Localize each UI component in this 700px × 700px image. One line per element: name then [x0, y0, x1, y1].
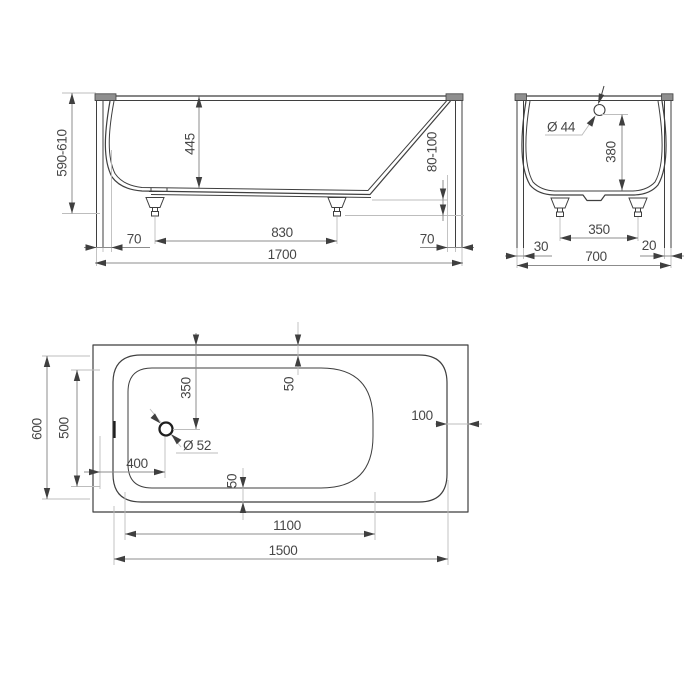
side-view: Ø 44 380 350 30 20 700: [505, 86, 684, 269]
side-foot-right: [629, 198, 647, 217]
plan-view-dimensions: 350 50 100 600 500 400: [30, 333, 479, 562]
dim-overall-width: 700: [585, 249, 607, 264]
bowl-inner-wall: [109, 101, 446, 191]
side-foot-left: [551, 198, 569, 217]
dim-bowl-length: 1100: [273, 518, 301, 533]
drawing-canvas: 590-610 445 80-100 70 830 70: [0, 0, 700, 700]
front-view: 590-610 445 80-100 70 830 70: [55, 93, 474, 266]
overflow-marker-arrow: [598, 93, 604, 104]
dim-bowl-width: 500: [57, 417, 72, 439]
dim-rim-width-end: 100: [411, 408, 433, 423]
dim-rim-offset-right: 70: [420, 232, 434, 247]
dim-opening-width: 600: [30, 418, 45, 440]
front-view-extension-lines: [62, 93, 464, 266]
dim-feet-distance: 830: [271, 225, 293, 240]
dim-drain-offset-top: 350: [179, 377, 194, 399]
plan-view-geometry: [93, 345, 468, 512]
plan-view: 350 50 100 600 500 400: [30, 322, 482, 565]
rim-section-left: [515, 94, 527, 101]
plan-view-extension-lines: [42, 322, 482, 565]
bathtub-technical-drawing: 590-610 445 80-100 70 830 70: [0, 0, 700, 700]
dim-overall-length: 1700: [268, 247, 297, 262]
dim-offset-right: 20: [642, 238, 656, 253]
overflow-hole: [594, 105, 605, 116]
side-view-dimensions: Ø 44 380 350 30 20 700: [505, 115, 684, 269]
dim-overflow-diameter: Ø 44: [547, 120, 576, 135]
bowl-outer-wall: [105, 101, 450, 195]
rim-section-right: [662, 94, 674, 101]
drain-hole: [160, 423, 173, 436]
dim-opening-length: 1500: [269, 543, 298, 558]
rim-section-left: [95, 94, 116, 101]
dim-foot-height: 80-100: [425, 132, 440, 172]
dim-inner-depth: 445: [183, 133, 198, 155]
dim-offset-left: 30: [534, 239, 548, 254]
dim-rim-width-bottom: 50: [225, 474, 240, 488]
bowl-inner-wall: [526, 101, 662, 191]
dim-drain-diameter: Ø 52: [183, 438, 211, 453]
dim-rim-width-top: 50: [282, 377, 297, 391]
dim-overall-height: 590-610: [55, 129, 70, 176]
front-foot-left: [146, 198, 164, 217]
rim-section-right: [446, 94, 463, 101]
front-foot-right: [328, 198, 346, 217]
tub-outline: [93, 345, 468, 512]
bowl-outer-wall: [522, 101, 666, 201]
dim-feet-distance: 350: [588, 222, 610, 237]
front-view-dimensions: 590-610 445 80-100 70 830 70: [55, 93, 474, 266]
dim-overflow-depth: 380: [604, 141, 619, 163]
dim-drain-offset-left: 400: [126, 456, 148, 471]
dim-rim-offset-left: 70: [127, 232, 141, 247]
